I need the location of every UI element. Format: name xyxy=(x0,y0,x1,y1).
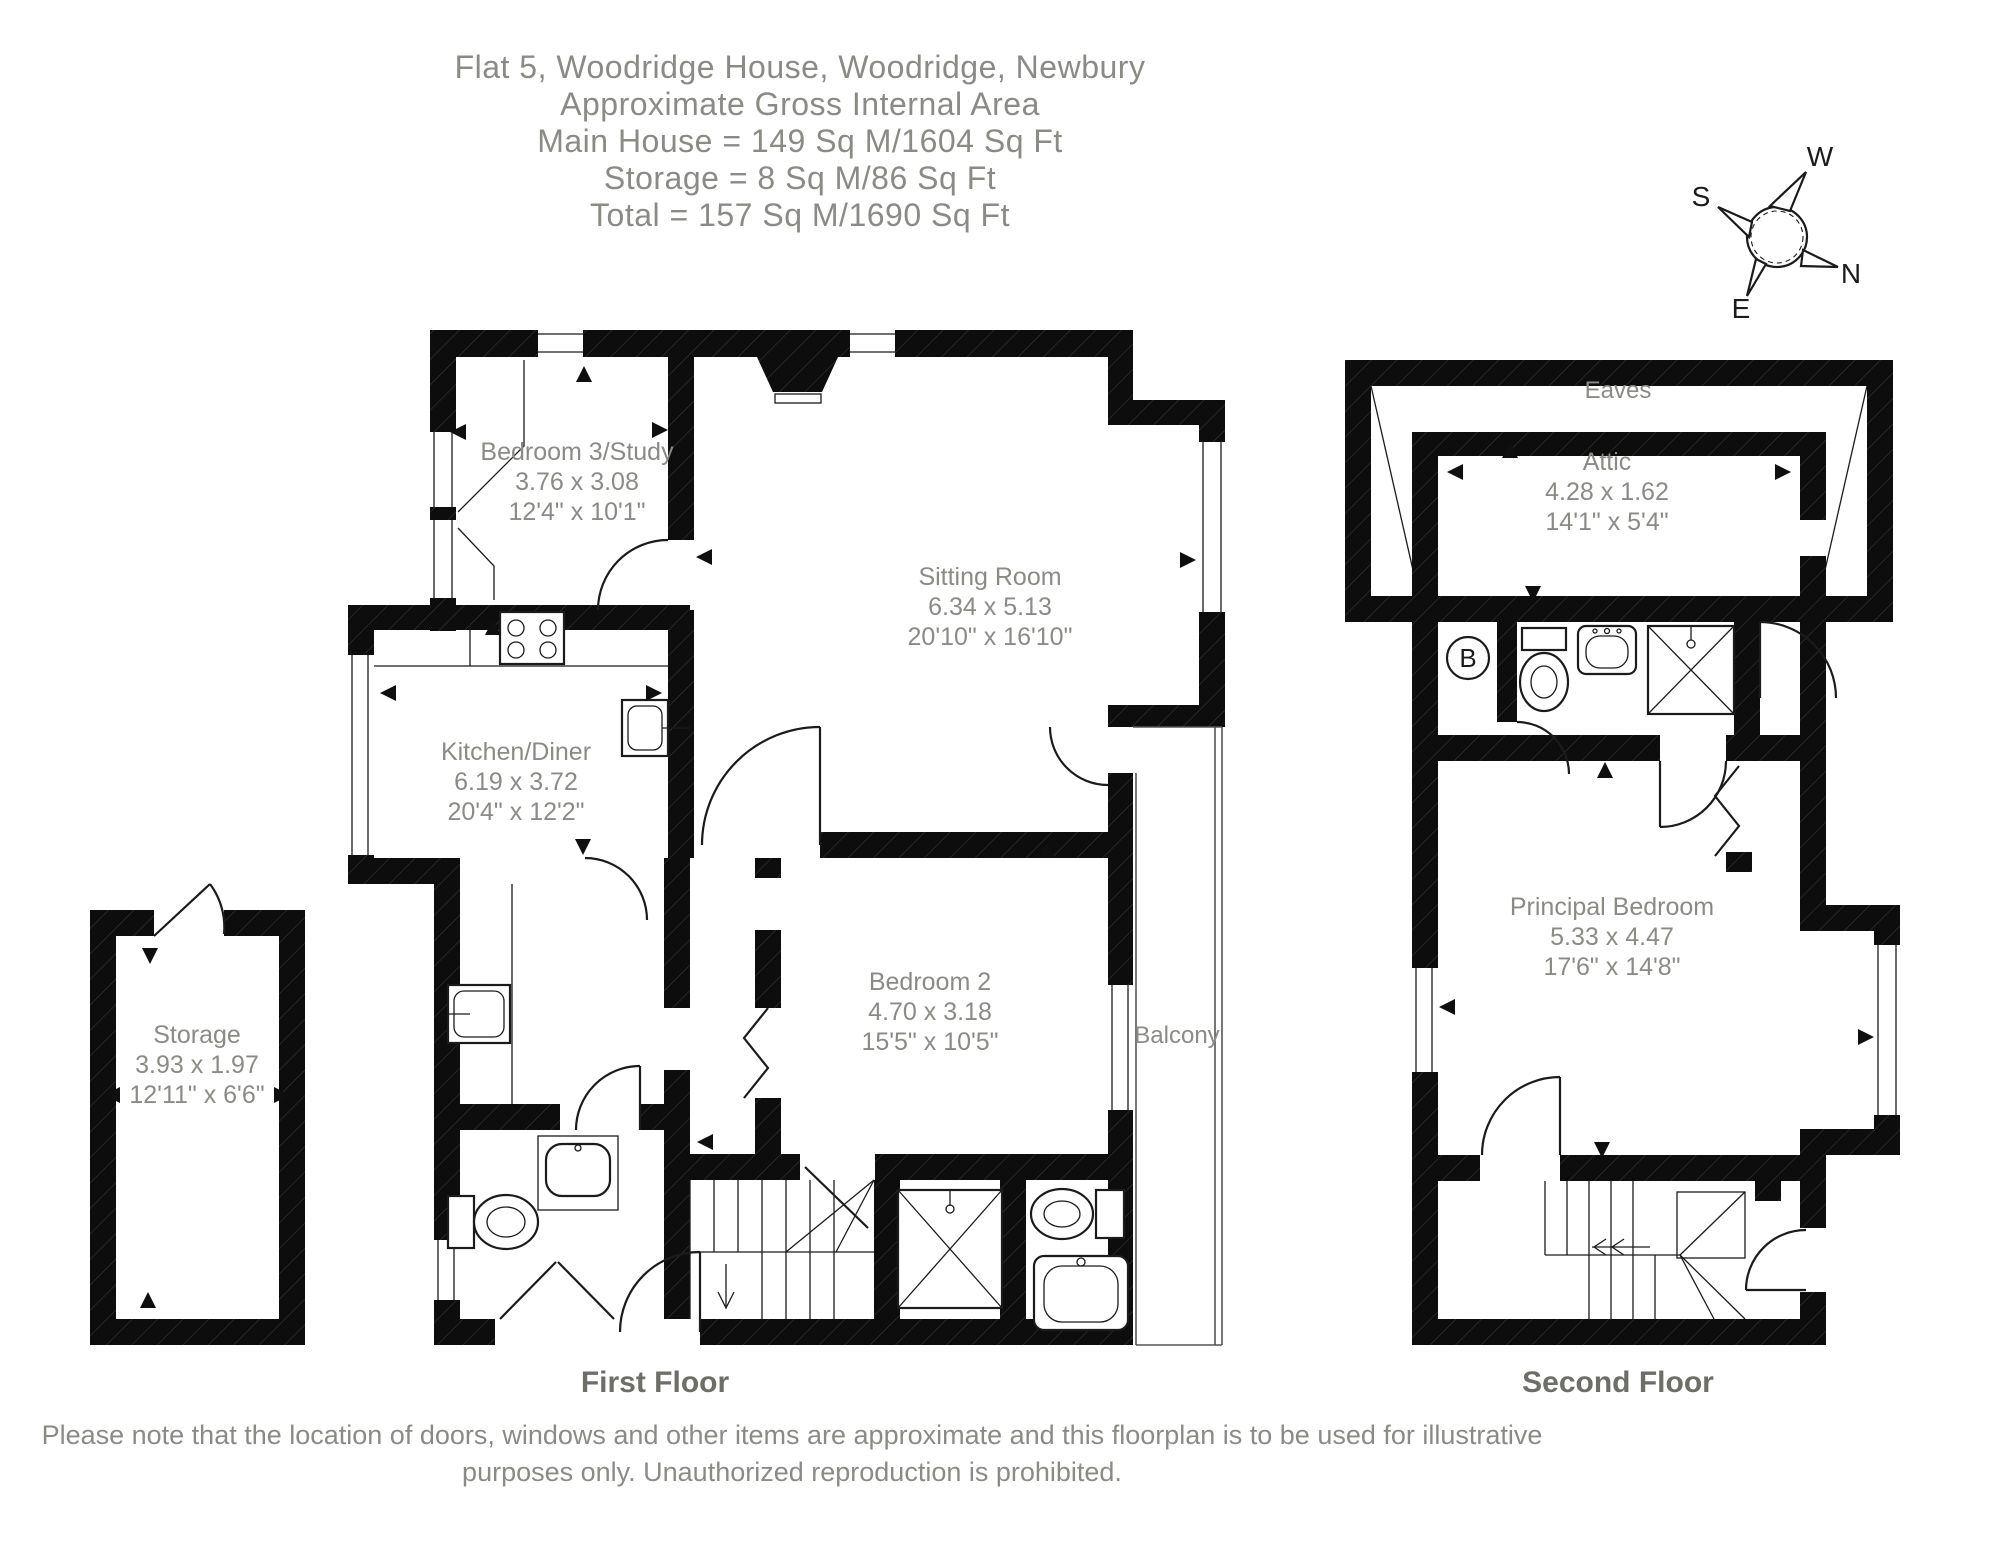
arrow-icon xyxy=(575,839,591,855)
arrow-icon xyxy=(696,549,712,565)
toilet-icon xyxy=(1522,628,1566,650)
room-imperial: 14'1" x 5'4" xyxy=(1545,508,1668,536)
room-metric: 6.34 x 5.13 xyxy=(928,593,1052,621)
bathroom-toilet-icon xyxy=(448,1196,474,1248)
arrow-icon xyxy=(1858,1029,1874,1045)
room-metric: 4.70 x 3.18 xyxy=(868,998,992,1026)
room-name: Principal Bedroom xyxy=(1510,893,1714,921)
wc-toilet-icon xyxy=(1096,1190,1124,1238)
room-imperial: 15'5" x 10'5" xyxy=(861,1028,998,1056)
compass-spike-w xyxy=(1770,172,1806,211)
room-label-principal: Principal Bedroom 5.33 x 4.47 17'6" x 14… xyxy=(1510,893,1714,981)
compass-spike-e xyxy=(1747,259,1766,296)
title-storage-area: Storage = 8 Sq M/86 Sq Ft xyxy=(604,160,996,196)
room-label-bedroom2: Bedroom 2 4.70 x 3.18 15'5" x 10'5" xyxy=(861,968,998,1056)
room-name: Bedroom 2 xyxy=(869,968,991,996)
room-imperial: 20'10" x 16'10" xyxy=(908,623,1073,651)
arrow-icon xyxy=(652,422,668,438)
hob-icon xyxy=(500,612,564,664)
room-label-sitting: Sitting Room 6.34 x 5.13 20'10" x 16'10" xyxy=(908,563,1073,651)
storage-building xyxy=(90,884,305,1345)
arrow-icon xyxy=(142,948,158,964)
room-name: Attic xyxy=(1583,448,1632,476)
room-metric: 3.76 x 3.08 xyxy=(515,468,639,496)
room-metric: 3.93 x 1.97 xyxy=(135,1051,259,1079)
title-area-caption: Approximate Gross Internal Area xyxy=(560,86,1040,122)
floorplan-page: Flat 5, Woodridge House, Woodridge, Newb… xyxy=(0,0,1999,1545)
arrow-icon xyxy=(1180,552,1196,568)
bath-icon xyxy=(1034,1256,1128,1330)
room-metric: 4.28 x 1.62 xyxy=(1545,478,1669,506)
arrow-icon xyxy=(1775,464,1791,480)
title-block: Flat 5, Woodridge House, Woodridge, Newb… xyxy=(455,49,1146,233)
arrow-icon xyxy=(140,1292,156,1308)
room-name: Bedroom 3/Study xyxy=(480,438,674,466)
arrow-icon xyxy=(1439,999,1455,1015)
arrow-icon xyxy=(1597,762,1613,778)
title-main-house-area: Main House = 149 Sq M/1604 Sq Ft xyxy=(537,123,1063,159)
room-imperial: 17'6" x 14'8" xyxy=(1543,953,1680,981)
room-name: Kitchen/Diner xyxy=(441,738,591,766)
first-floor-label: First Floor xyxy=(581,1366,730,1399)
arrow-icon xyxy=(697,1134,713,1150)
captions: First Floor Second Floor Please note tha… xyxy=(42,1366,1715,1487)
kitchen-sink-icon xyxy=(622,700,668,756)
compass-spike-s xyxy=(1718,207,1752,237)
room-label-balcony: Balcony xyxy=(1134,1022,1219,1049)
floorplan-canvas: Flat 5, Woodridge House, Woodridge, Newb… xyxy=(0,0,1999,1545)
room-metric: 6.19 x 3.72 xyxy=(454,768,578,796)
room-label-eaves: Eaves xyxy=(1585,377,1652,404)
room-label-kitchen: Kitchen/Diner 6.19 x 3.72 20'4" x 12'2" xyxy=(441,738,591,826)
room-name: Storage xyxy=(153,1021,241,1049)
room-label-attic: Attic 4.28 x 1.62 14'1" x 5'4" xyxy=(1545,448,1669,536)
title-total-area: Total = 157 Sq M/1690 Sq Ft xyxy=(590,197,1010,233)
room-name: Sitting Room xyxy=(918,563,1061,591)
compass-label-n: N xyxy=(1841,258,1861,289)
disclaimer-line2: purposes only. Unauthorized reproduction… xyxy=(462,1457,1122,1487)
compass-label-e: E xyxy=(1732,293,1751,324)
compass-label-w: W xyxy=(1807,141,1834,172)
compass-rose: W S N E xyxy=(1692,141,1861,324)
title-address: Flat 5, Woodridge House, Woodridge, Newb… xyxy=(455,49,1146,85)
bathroom-basin-icon xyxy=(546,1144,610,1196)
room-metric: 5.33 x 4.47 xyxy=(1550,923,1674,951)
compass-label-s: S xyxy=(1692,181,1711,212)
room-label-storage: Storage 3.93 x 1.97 12'11" x 6'6" xyxy=(129,1021,264,1109)
room-imperial: 12'4" x 10'1" xyxy=(508,498,645,526)
arrow-icon xyxy=(380,685,396,701)
arrow-icon xyxy=(576,366,592,382)
compass-spike-n xyxy=(1801,250,1838,267)
arrow-icon xyxy=(646,685,662,701)
room-label-bedroom3: Bedroom 3/Study 3.76 x 3.08 12'4" x 10'1… xyxy=(480,438,674,526)
arrow-icon xyxy=(1447,464,1463,480)
second-floor-label: Second Floor xyxy=(1522,1366,1714,1399)
disclaimer-line1: Please note that the location of doors, … xyxy=(42,1420,1543,1450)
boiler-label: B xyxy=(1459,643,1476,673)
room-imperial: 12'11" x 6'6" xyxy=(129,1081,264,1109)
room-imperial: 20'4" x 12'2" xyxy=(447,798,584,826)
